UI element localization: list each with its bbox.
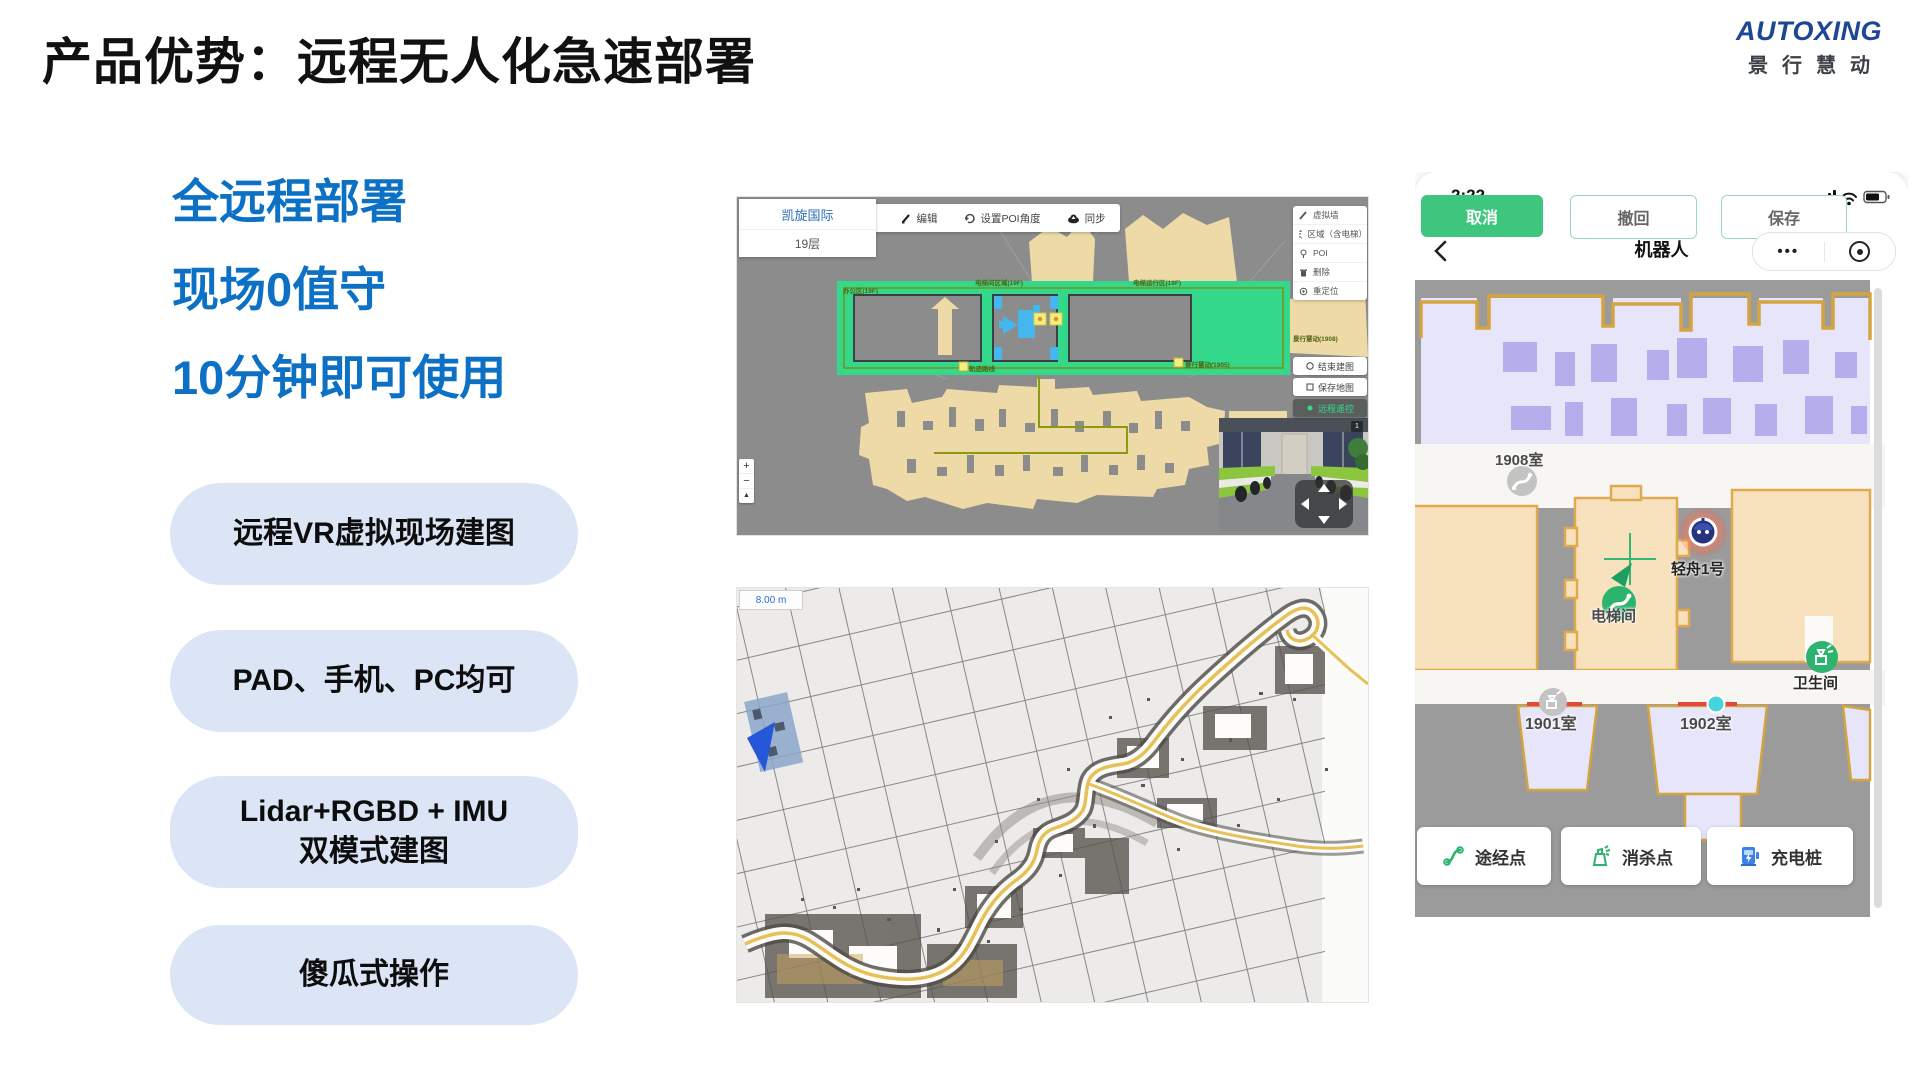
- waypoint-1908-icon[interactable]: [1507, 466, 1537, 496]
- tool-delete[interactable]: 删除: [1293, 263, 1367, 282]
- undo-button[interactable]: 撤回: [1570, 195, 1697, 239]
- robot-name-label: 轻舟1号: [1671, 558, 1724, 579]
- map-region-label: 电梯间区域(19F): [975, 277, 1023, 287]
- pill-text: 傻瓜式操作: [299, 955, 449, 995]
- region-icon: [1299, 230, 1302, 239]
- spray-toilet-icon[interactable]: [1806, 641, 1838, 673]
- miniprogram-capsule: •••: [1752, 232, 1896, 271]
- stop-circle-icon: [1306, 362, 1314, 370]
- pill-text-2: 双模式建图: [299, 832, 449, 872]
- indoor-map-canvas[interactable]: [1415, 280, 1908, 917]
- lidar-map-canvas[interactable]: [737, 588, 1368, 1002]
- feature-pill-devices: PAD、手机、PC均可: [170, 630, 578, 732]
- spray-icon: [1589, 844, 1613, 868]
- pill-text: PAD、手机、PC均可: [233, 661, 516, 701]
- pencil-icon: [901, 213, 912, 224]
- rotate-icon: [964, 213, 976, 224]
- pill-text: Lidar+RGBD + IMU: [240, 792, 508, 832]
- room-1902-label: 1902室: [1680, 710, 1732, 734]
- feature-pill-sensors: Lidar+RGBD + IMU 双模式建图: [170, 776, 578, 888]
- waypoint-type-button[interactable]: 途经点: [1417, 827, 1551, 885]
- charger-type-button[interactable]: 充电桩: [1707, 827, 1853, 885]
- highlight-line-2: 现场0值守: [172, 246, 506, 334]
- logo-brand-text: AUTOXING: [1736, 16, 1882, 47]
- locate-button[interactable]: ▲: [739, 489, 754, 503]
- feature-pill-vr-mapping: 远程VR虚拟现场建图: [170, 483, 578, 585]
- camera-dpad[interactable]: [1295, 480, 1353, 528]
- room-1908-label: 1908室: [1495, 449, 1543, 470]
- lidar-pointcloud-map: 8.00 m: [737, 588, 1368, 1002]
- console-action-buttons: 结束建图 保存地图 远程遥控: [1293, 357, 1367, 420]
- toilet-label: 卫生间: [1793, 672, 1838, 693]
- battery-icon: [1864, 192, 1890, 203]
- page-title: 产品优势：远程无人化急速部署: [42, 22, 756, 94]
- floor-name[interactable]: 19层: [795, 235, 820, 252]
- pencil-icon: [1299, 211, 1308, 220]
- web-mapping-console: 凯旋国际 19层 电梯路径点 编辑 设置POI角度 同步 虚拟墙 区域（含电梯）: [737, 197, 1368, 535]
- close-miniprogram-button[interactable]: [1825, 241, 1896, 262]
- toolbar-sync-button[interactable]: 同步: [1067, 211, 1106, 226]
- zoom-in-button[interactable]: +: [739, 459, 754, 474]
- remote-icon: [1306, 404, 1314, 412]
- save-map-button[interactable]: 保存地图: [1293, 378, 1367, 396]
- room-walls: [1415, 486, 1870, 670]
- map-scale-label: 8.00 m: [739, 590, 803, 610]
- pill-text: 远程VR虚拟现场建图: [233, 514, 515, 554]
- zoom-out-button[interactable]: −: [739, 474, 754, 489]
- more-options-button[interactable]: •••: [1753, 243, 1824, 260]
- save-square-icon: [1306, 383, 1314, 391]
- target-icon: [1849, 241, 1870, 262]
- autoxing-logo: AUTOXING 景行慧动: [1736, 16, 1882, 78]
- map-region-label: 电梯运行区(19F): [1133, 277, 1181, 287]
- elevator-label: 电梯间: [1591, 605, 1636, 626]
- highlight-line-1: 全远程部署: [172, 158, 506, 246]
- map-region-label: 办公区(19F): [843, 285, 878, 295]
- console-tools-panel: 虚拟墙 区域（含电梯） POI 删除 重定位: [1293, 206, 1367, 300]
- cloud-sync-icon: [1067, 213, 1080, 224]
- robot-avatar[interactable]: [1679, 508, 1727, 556]
- tool-region[interactable]: 区域（含电梯）: [1293, 225, 1367, 244]
- map-region-label: 景行慧动(1905): [1185, 359, 1230, 369]
- map-region-label: 景行慧动(1908): [1293, 333, 1338, 343]
- map-route-label: 轨迹路线: [969, 363, 995, 373]
- back-chevron-icon[interactable]: [1433, 240, 1447, 262]
- poi-pin-icon: [1299, 249, 1308, 258]
- room-1901-label: 1901室: [1525, 710, 1577, 734]
- building-floor-dropdown[interactable]: 凯旋国际 19层: [739, 199, 876, 257]
- tool-relocate[interactable]: 重定位: [1293, 282, 1367, 300]
- toolbar-set-poi-angle-button[interactable]: 设置POI角度: [964, 211, 1041, 226]
- remote-control-button[interactable]: 远程遥控: [1293, 399, 1367, 417]
- toolbar-edit-button[interactable]: 编辑: [901, 211, 938, 226]
- camera-index-badge: 1: [1351, 421, 1363, 432]
- charging-pile-icon: [1738, 844, 1762, 868]
- logo-chinese-text: 景行慧动: [1736, 49, 1896, 78]
- cancel-button[interactable]: 取消: [1421, 195, 1543, 237]
- map-zoom-controls: + − ▲: [739, 459, 754, 503]
- tool-virtual-wall[interactable]: 虚拟墙: [1293, 206, 1367, 225]
- finish-mapping-button[interactable]: 结束建图: [1293, 357, 1367, 375]
- disinfect-type-button[interactable]: 消杀点: [1561, 827, 1701, 885]
- highlight-line-3: 10分钟即可使用: [172, 334, 506, 422]
- tool-poi[interactable]: POI: [1293, 244, 1367, 263]
- map-scrollbar[interactable]: [1874, 288, 1882, 908]
- robot-camera-feed: [1219, 418, 1368, 531]
- route-icon: [1442, 845, 1466, 867]
- relocate-icon: [1299, 287, 1308, 296]
- highlights-text: 全远程部署 现场0值守 10分钟即可使用: [172, 158, 506, 422]
- building-name[interactable]: 凯旋国际: [781, 205, 833, 224]
- trash-icon: [1299, 268, 1308, 277]
- feature-pill-easy-operation: 傻瓜式操作: [170, 925, 578, 1025]
- phone-mini-program: 2:22 机器人 •••: [1415, 172, 1908, 1080]
